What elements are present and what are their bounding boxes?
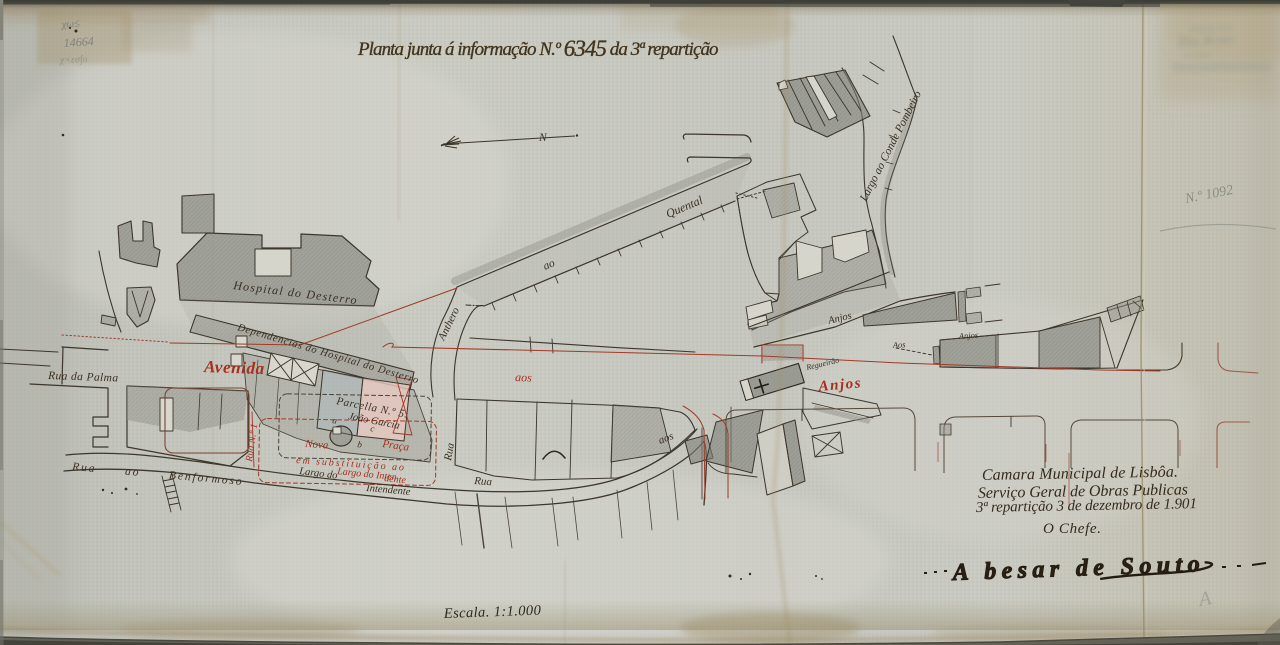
svg-text:aos: aos bbox=[515, 370, 532, 385]
svg-text:Camara Municipal de Lisbôa.: Camara Municipal de Lisbôa. bbox=[982, 464, 1178, 484]
svg-text:Aos: Aos bbox=[891, 339, 906, 350]
svg-text:Planta junta á informação N.º: Planta junta á informação N.º 6345 da 3ª… bbox=[357, 36, 719, 61]
svg-text:Rua da Palma: Rua da Palma bbox=[47, 370, 119, 384]
svg-text:χ×εσ∫υ: χ×εσ∫υ bbox=[59, 54, 88, 66]
svg-text:N: N bbox=[538, 132, 548, 144]
svg-text:Шд Жтит: Шд Жтит bbox=[1177, 31, 1236, 49]
svg-text:14664: 14664 bbox=[63, 34, 94, 50]
svg-text:χω≤: χω≤ bbox=[60, 17, 81, 31]
svg-text:O Chefe.: O Chefe. bbox=[1043, 521, 1101, 537]
svg-text:Nova: Nova bbox=[304, 438, 329, 452]
svg-text:Avenida: Avenida bbox=[203, 357, 265, 378]
svg-text:тишцяш: тишцяш bbox=[1182, 49, 1211, 60]
svg-text:Rua: Rua bbox=[473, 475, 493, 488]
svg-text:Anjos: Anjos bbox=[957, 330, 979, 341]
